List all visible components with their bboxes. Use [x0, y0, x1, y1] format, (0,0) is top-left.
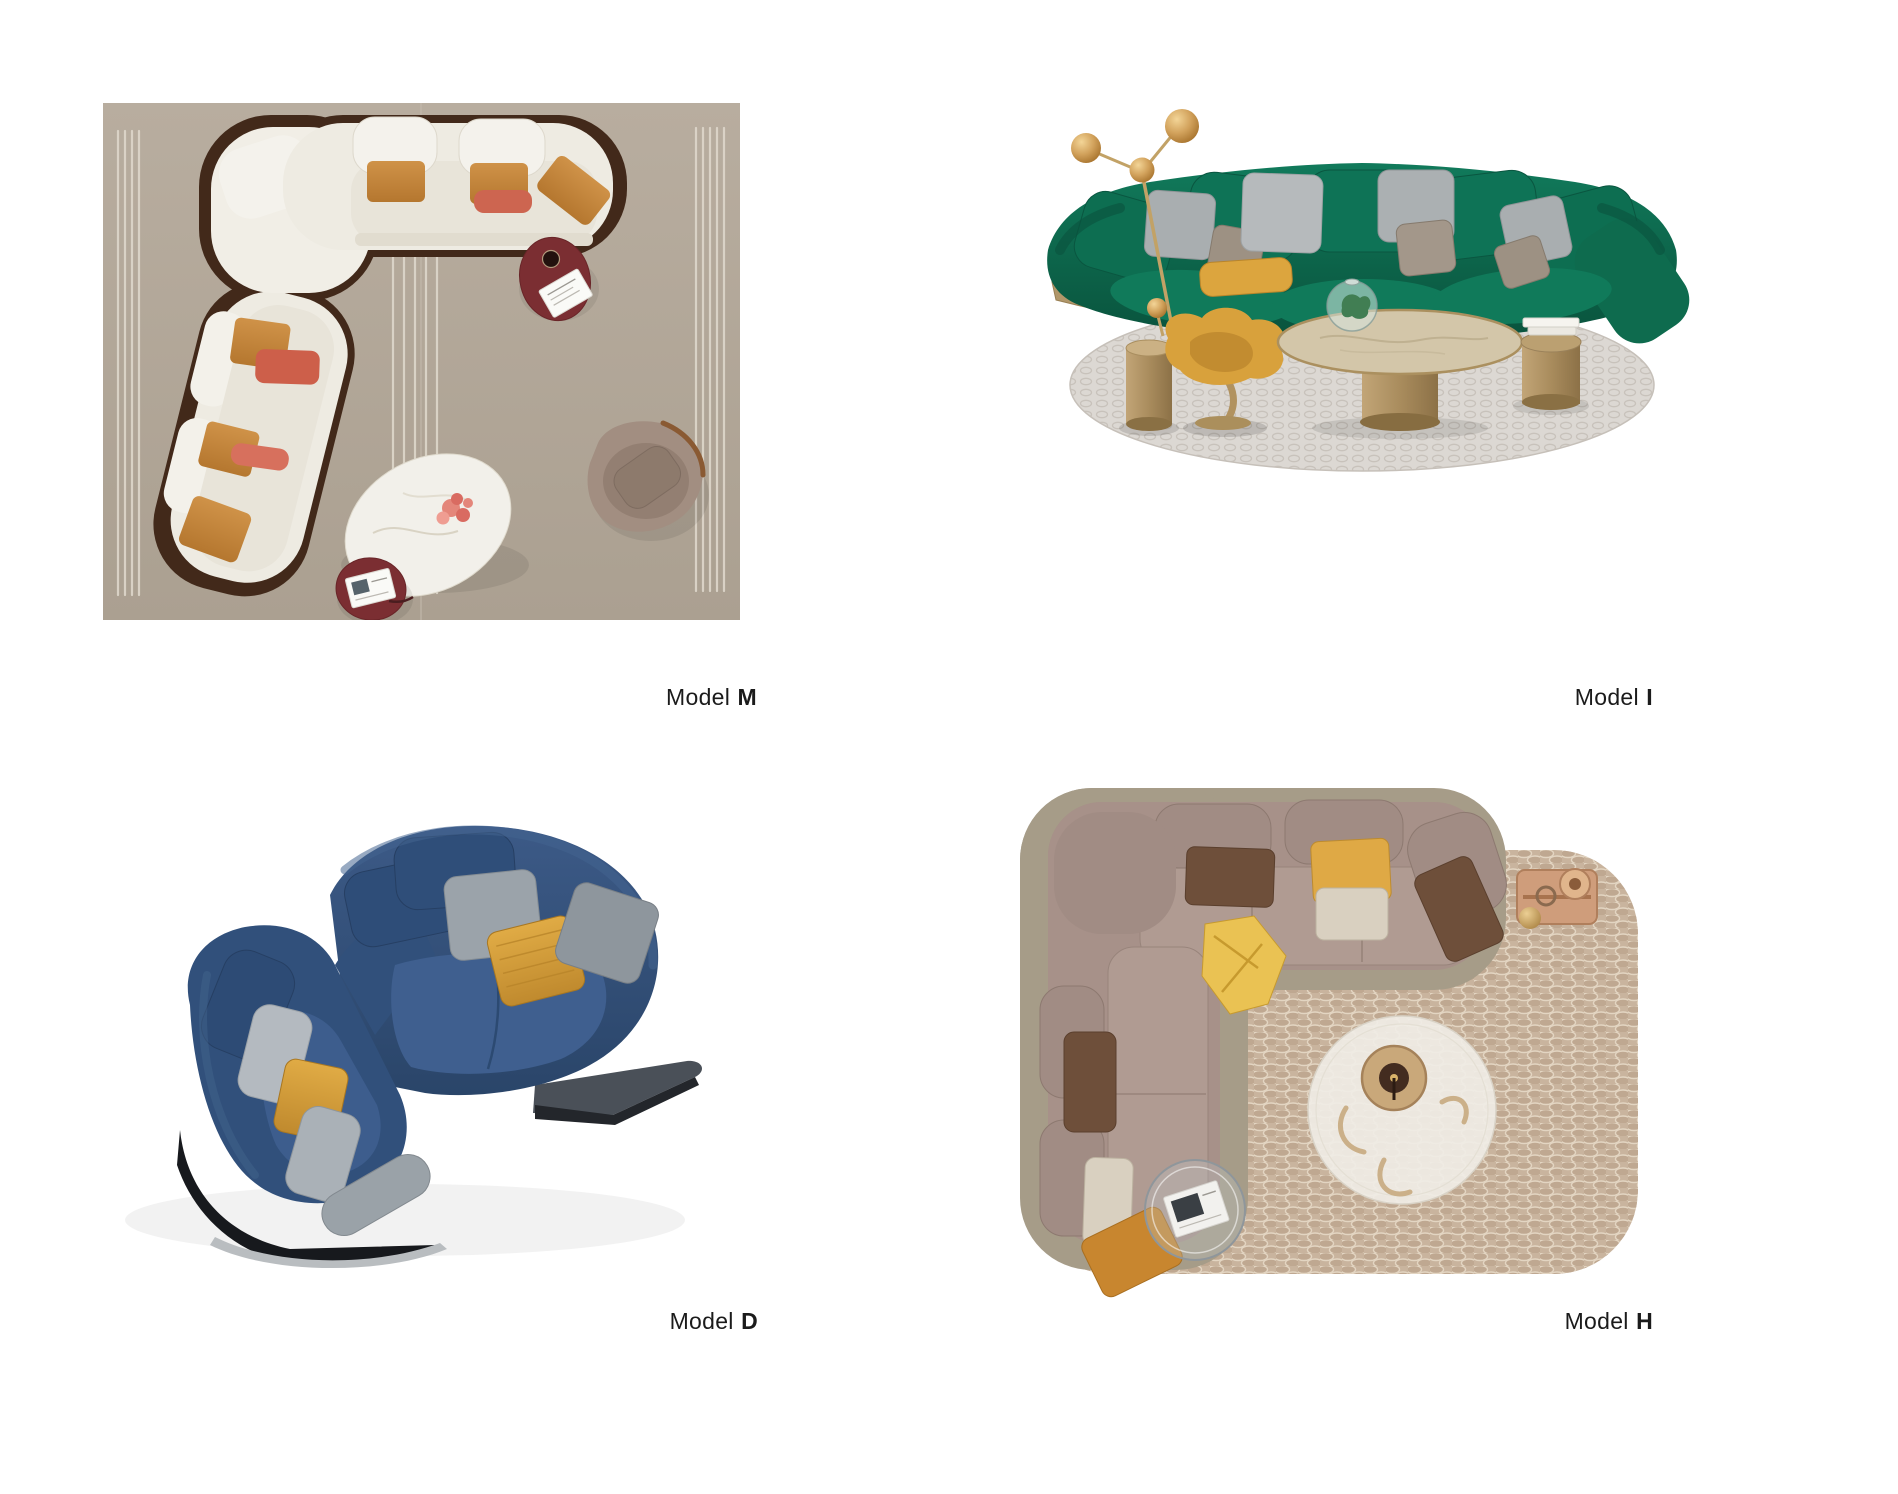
decor-tray: [1362, 1046, 1426, 1110]
product-photo-model-i: [1030, 90, 1690, 535]
model-label-prefix: Model: [1575, 684, 1639, 710]
product-photo-model-h: [990, 772, 1670, 1300]
tray-copper: [1517, 869, 1597, 929]
model-label-letter: I: [1646, 684, 1653, 710]
model-label-prefix: Model: [666, 684, 730, 710]
model-d-label: ModelD: [458, 1308, 758, 1336]
model-h-label: ModelH: [1353, 1308, 1653, 1336]
model-label-prefix: Model: [1565, 1308, 1629, 1334]
model-label-letter: M: [738, 684, 757, 710]
model-i-label: ModelI: [1353, 684, 1653, 712]
book-stack: [1523, 318, 1579, 335]
model-label-prefix: Model: [670, 1308, 734, 1334]
model-m-label: ModelM: [457, 684, 757, 712]
product-photo-model-d: [95, 775, 720, 1270]
product-photo-model-m: [103, 103, 740, 620]
armchair-top-view: [588, 421, 709, 541]
model-label-letter: D: [741, 1308, 758, 1334]
model-label-letter: H: [1636, 1308, 1653, 1334]
coffee-table-round-marble: [1308, 1016, 1496, 1204]
side-table-glass: [1145, 1160, 1245, 1260]
